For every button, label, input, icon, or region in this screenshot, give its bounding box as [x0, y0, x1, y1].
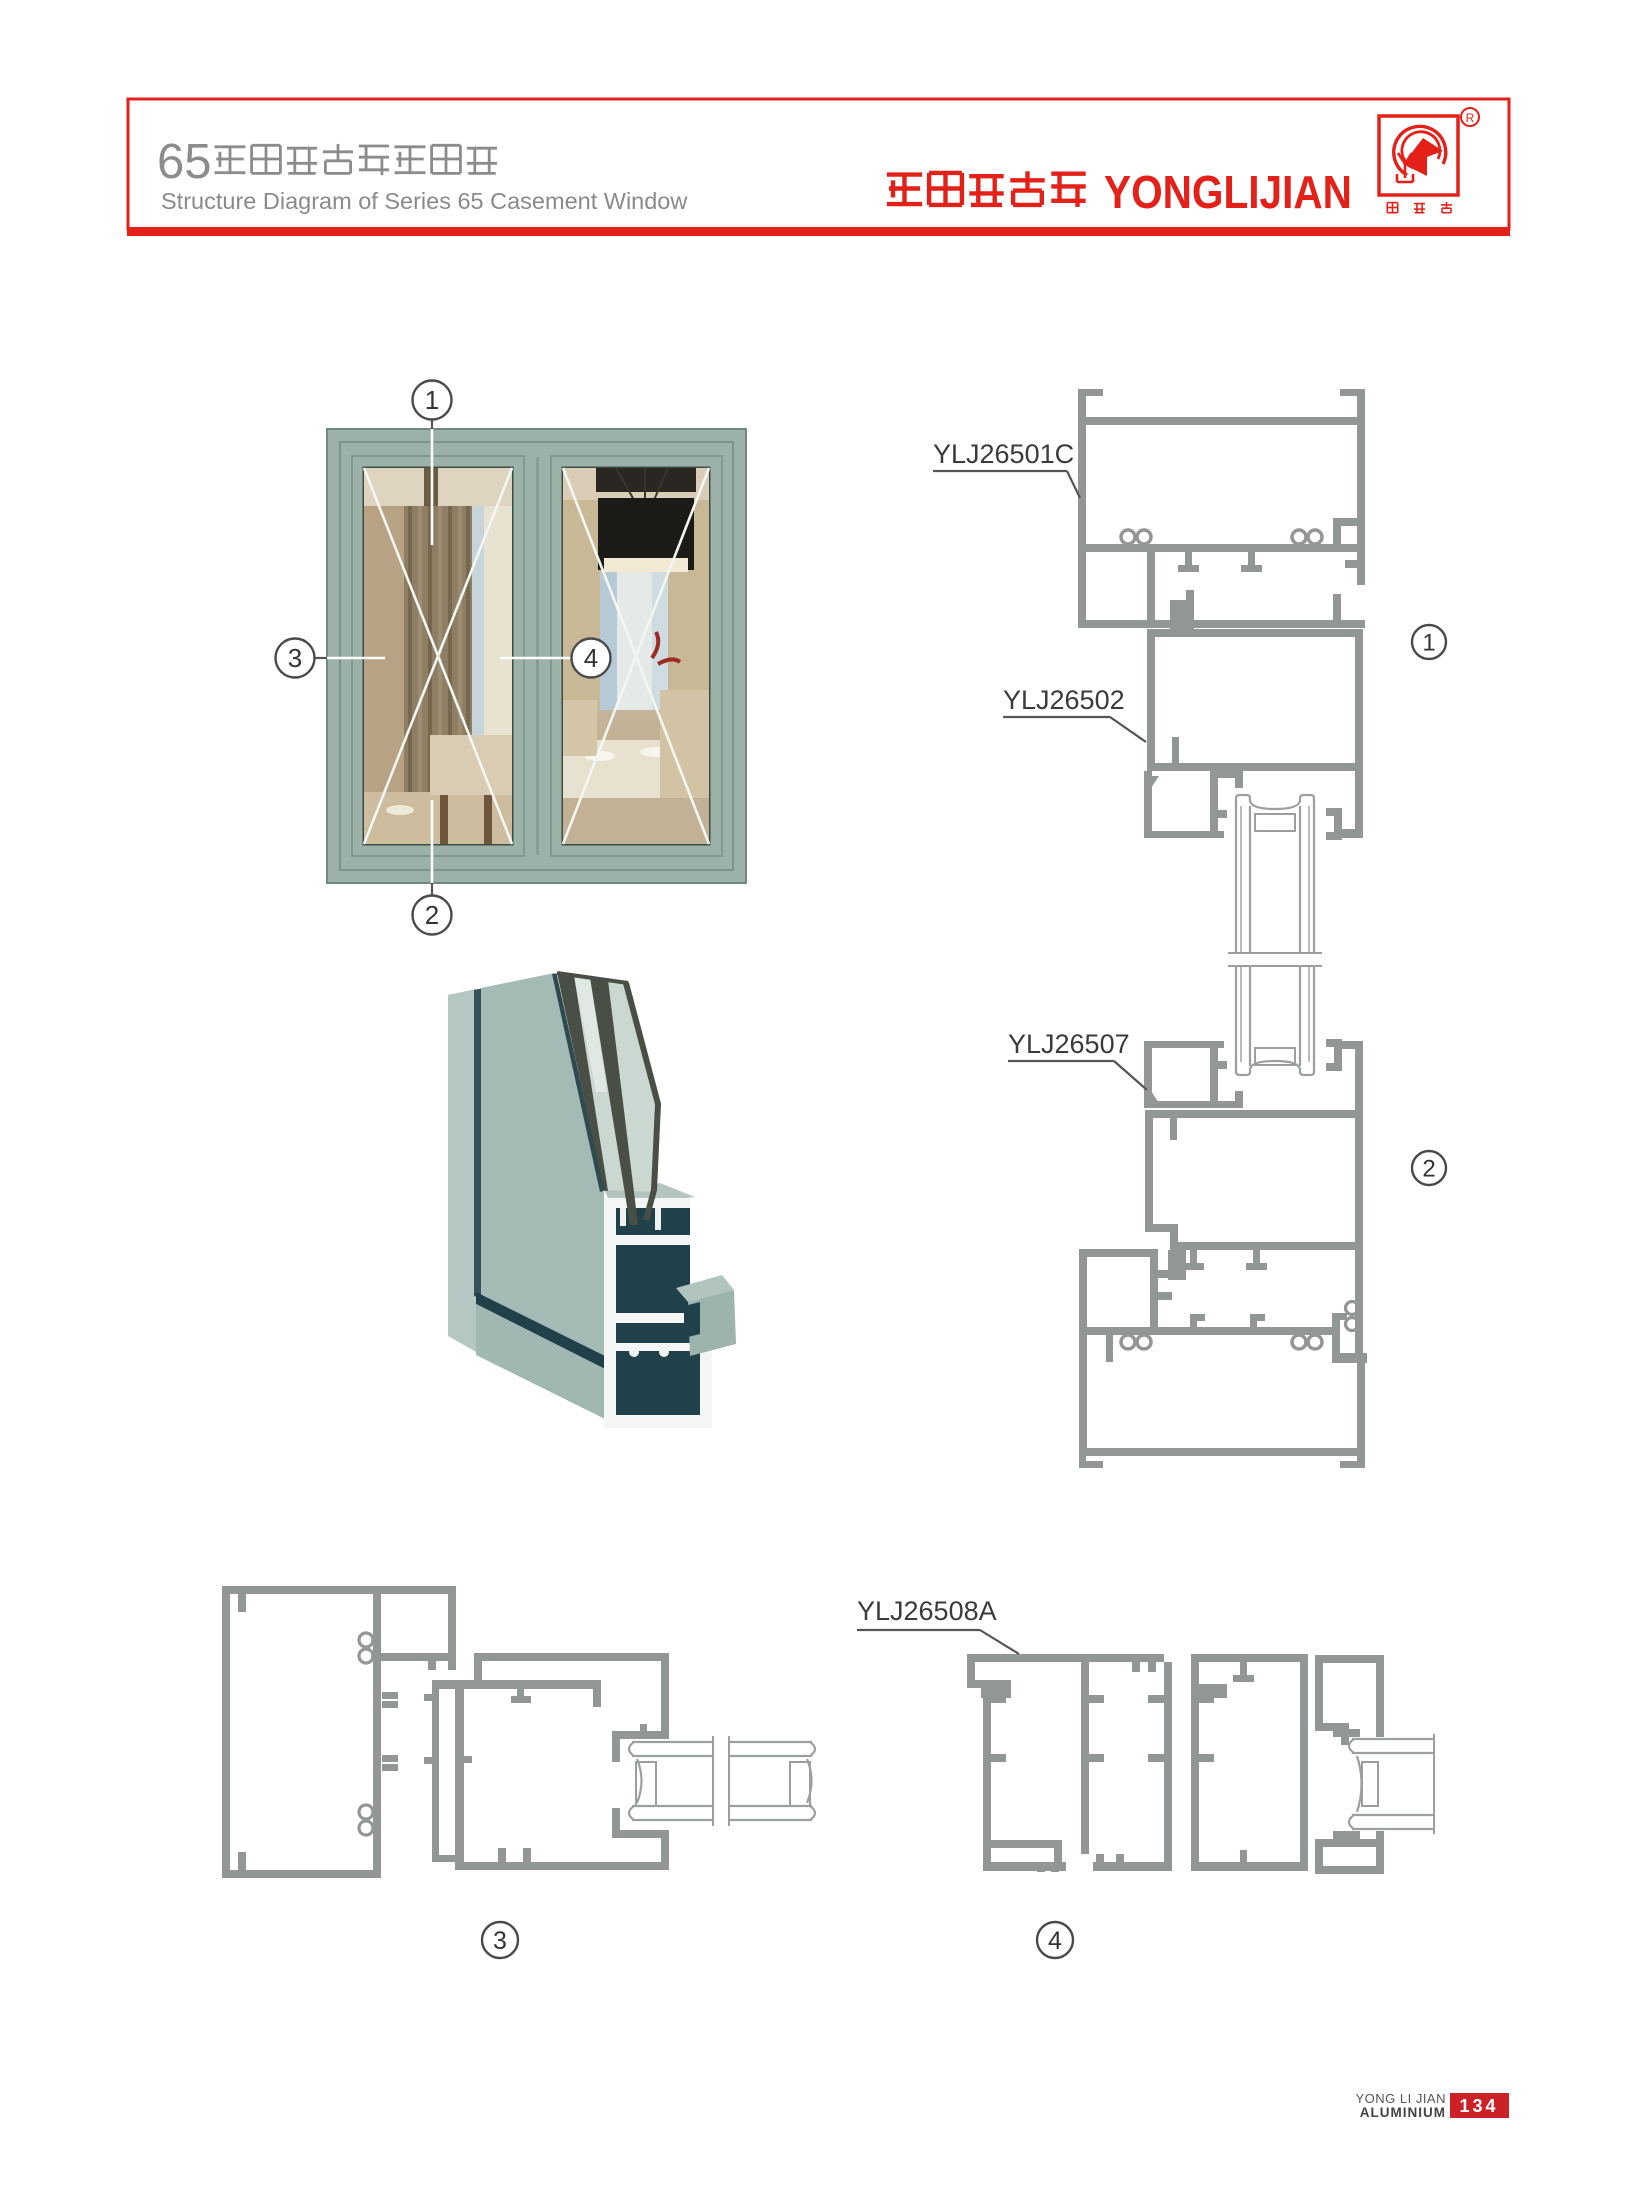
svg-text:1: 1: [1422, 629, 1435, 656]
svg-text:YONG LI JIAN: YONG LI JIAN: [1355, 2091, 1446, 2106]
svg-text:4: 4: [584, 643, 598, 673]
svg-text:YLJ26501C: YLJ26501C: [933, 439, 1074, 469]
svg-text:3: 3: [493, 1927, 507, 1955]
svg-text:4: 4: [1048, 1927, 1062, 1955]
svg-text:2: 2: [425, 900, 439, 930]
svg-text:1: 1: [425, 385, 439, 415]
svg-text:YONGLIJIAN: YONGLIJIAN: [1104, 166, 1352, 218]
svg-text:YLJ26508A: YLJ26508A: [857, 1596, 997, 1626]
svg-text:2: 2: [1422, 1155, 1435, 1182]
svg-text:YLJ26507: YLJ26507: [1008, 1029, 1130, 1059]
svg-text:Structure Diagram of Series 65: Structure Diagram of Series 65 Casement …: [161, 188, 688, 214]
svg-text:R: R: [1466, 111, 1475, 125]
svg-text:YLJ26502: YLJ26502: [1003, 685, 1125, 715]
svg-text:ALUMINIUM: ALUMINIUM: [1360, 2105, 1446, 2120]
svg-text:134: 134: [1459, 2096, 1498, 2116]
svg-text:65: 65: [157, 135, 212, 189]
svg-text:3: 3: [288, 643, 302, 673]
